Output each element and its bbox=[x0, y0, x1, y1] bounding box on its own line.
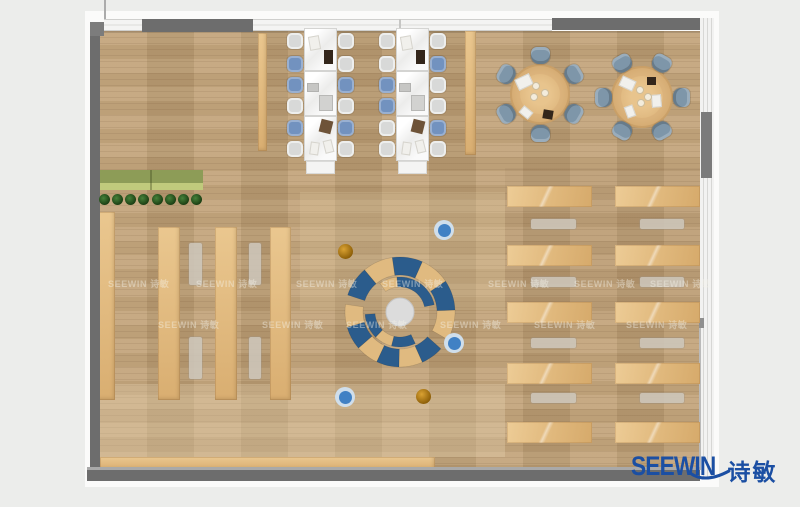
library-floor-plan: SEEWIN 诗敏SEEWIN 诗敏SEEWIN 诗敏SEEWIN 诗敏SEEW… bbox=[0, 0, 800, 507]
watermark: SEEWIN 诗敏 bbox=[650, 277, 740, 289]
desk-item-paper bbox=[309, 141, 320, 155]
desk-bench bbox=[531, 219, 576, 229]
reading-desk bbox=[615, 422, 700, 443]
stool-orange bbox=[338, 244, 353, 259]
brand-logo: SEEWIN 诗敏 bbox=[631, 451, 778, 487]
stool-blue bbox=[448, 337, 461, 350]
table-chair bbox=[673, 88, 690, 107]
table-chair bbox=[531, 125, 550, 142]
reading-desk bbox=[507, 186, 592, 207]
desk-item-dark bbox=[416, 50, 425, 64]
desk-item-paper bbox=[308, 35, 321, 51]
watermark: SEEWIN 诗敏 bbox=[108, 277, 198, 289]
desk-chair bbox=[338, 56, 354, 72]
desk-item-dark bbox=[324, 50, 333, 64]
desk-chair bbox=[338, 120, 354, 136]
desk-chair bbox=[379, 141, 395, 157]
desk-chair bbox=[430, 120, 446, 136]
watermark: SEEWIN 诗敏 bbox=[346, 318, 436, 330]
plant bbox=[138, 194, 149, 205]
watermark: SEEWIN 诗敏 bbox=[534, 318, 624, 330]
desk-chair bbox=[287, 98, 303, 114]
plant bbox=[125, 194, 136, 205]
reading-bench-2 bbox=[189, 337, 202, 379]
reading-desk bbox=[615, 186, 700, 207]
plant bbox=[191, 194, 202, 205]
desk-chair bbox=[287, 56, 303, 72]
watermark: SEEWIN 诗敏 bbox=[196, 277, 286, 289]
desk-item-paper bbox=[400, 35, 413, 51]
window-wall-right bbox=[700, 18, 714, 478]
wall-top-b bbox=[552, 18, 712, 30]
desk-chair bbox=[430, 77, 446, 93]
desk-bench bbox=[531, 393, 576, 403]
shelf-pillar-left bbox=[258, 33, 267, 151]
desk-chair bbox=[338, 98, 354, 114]
desk-bench bbox=[531, 338, 576, 348]
plate bbox=[541, 89, 549, 97]
desk-bench bbox=[640, 393, 684, 403]
reading-desk bbox=[507, 363, 592, 384]
plate bbox=[530, 93, 538, 101]
bookshelf-row-2 bbox=[215, 227, 237, 400]
watermark: SEEWIN 诗敏 bbox=[440, 318, 530, 330]
desk-item-box bbox=[411, 95, 425, 111]
table-chair bbox=[531, 47, 550, 64]
wall-left bbox=[90, 22, 100, 472]
planter-seam bbox=[150, 170, 152, 190]
desk-chair bbox=[287, 120, 303, 136]
stool-blue bbox=[438, 224, 451, 237]
desk-chair bbox=[379, 77, 395, 93]
watermark: SEEWIN 诗敏 bbox=[262, 318, 352, 330]
logo-swoosh-icon bbox=[689, 469, 731, 484]
desk-chair bbox=[430, 141, 446, 157]
watermark: SEEWIN 诗敏 bbox=[488, 277, 578, 289]
wall-pier-right bbox=[701, 112, 712, 178]
desk-chair bbox=[338, 141, 354, 157]
desk-chair bbox=[287, 141, 303, 157]
bookshelf-wall-side bbox=[98, 212, 115, 400]
reading-desk bbox=[615, 363, 700, 384]
wall-top-a bbox=[142, 19, 253, 32]
desk-chair bbox=[430, 98, 446, 114]
desk-chair bbox=[287, 77, 303, 93]
desk-chair bbox=[430, 33, 446, 49]
desk-chair bbox=[379, 98, 395, 114]
desk-cabinet bbox=[398, 161, 427, 174]
lounge-circle bbox=[325, 237, 475, 387]
desk-chair bbox=[338, 77, 354, 93]
reading-desk bbox=[507, 422, 592, 443]
plate bbox=[637, 99, 645, 107]
wall-edge-right bbox=[699, 328, 701, 470]
desk-cabinet bbox=[306, 161, 335, 174]
plant bbox=[152, 194, 163, 205]
reading-bench-4 bbox=[249, 337, 261, 379]
round-table bbox=[611, 66, 673, 128]
lounge-sofa-segment bbox=[392, 335, 416, 348]
round-table bbox=[510, 64, 570, 124]
plant bbox=[165, 194, 176, 205]
watermark: SEEWIN 诗敏 bbox=[158, 318, 248, 330]
desk-item-paper bbox=[401, 141, 412, 155]
mullion-line-a bbox=[104, 0, 106, 19]
reading-desk bbox=[615, 245, 700, 266]
desk-item-panel bbox=[399, 83, 411, 92]
plant bbox=[178, 194, 189, 205]
window-top-left bbox=[104, 19, 142, 31]
wall-corner-topleft bbox=[90, 22, 104, 36]
bookshelf-row-1 bbox=[158, 227, 180, 400]
table-chair bbox=[595, 88, 612, 107]
table-item-dark bbox=[542, 109, 553, 120]
watermark: SEEWIN 诗敏 bbox=[296, 277, 386, 289]
plate bbox=[636, 86, 644, 94]
desk-chair bbox=[379, 120, 395, 136]
reading-desk bbox=[507, 245, 592, 266]
desk-item-panel bbox=[307, 83, 319, 92]
desk-chair bbox=[379, 56, 395, 72]
watermark: SEEWIN 诗敏 bbox=[626, 318, 716, 330]
desk-chair bbox=[287, 33, 303, 49]
desk-bench bbox=[640, 338, 684, 348]
stool-orange bbox=[416, 389, 431, 404]
wall-bottom bbox=[87, 470, 700, 481]
table-item-paper bbox=[650, 94, 661, 108]
bookshelf-row-3 bbox=[270, 227, 291, 400]
table-item-dark bbox=[647, 77, 656, 85]
plant bbox=[99, 194, 110, 205]
shelf-pillar-right bbox=[465, 31, 476, 155]
plate bbox=[532, 82, 540, 90]
watermark: SEEWIN 诗敏 bbox=[382, 277, 472, 289]
desk-chair bbox=[379, 33, 395, 49]
desk-bench bbox=[640, 219, 684, 229]
plant bbox=[112, 194, 123, 205]
stool-blue bbox=[339, 391, 352, 404]
plate bbox=[644, 93, 652, 101]
desk-item-box bbox=[319, 95, 333, 111]
floor-plan-canvas: SEEWIN 诗敏SEEWIN 诗敏SEEWIN 诗敏SEEWIN 诗敏SEEW… bbox=[0, 0, 800, 507]
desk-chair bbox=[430, 56, 446, 72]
desk-chair bbox=[338, 33, 354, 49]
brand-logo-chinese: 诗敏 bbox=[728, 453, 778, 487]
